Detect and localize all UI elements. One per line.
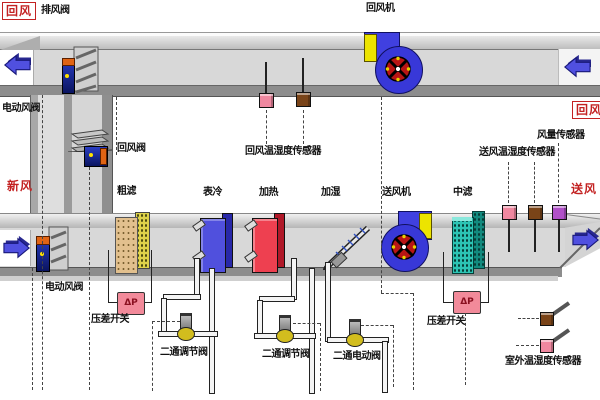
fan-impeller-icon <box>384 55 412 83</box>
airflow-sensor-label: 风量传感器 <box>537 131 585 141</box>
supply-air-arrow-icon <box>572 228 600 252</box>
electric-damper-bottom-label: 电动风阀 <box>45 283 83 293</box>
dp-switch-left: ΔP <box>117 292 145 315</box>
return-temp-humidity-sensor-1 <box>259 93 274 108</box>
two-way-electric-valve-body <box>346 333 364 347</box>
heating-coil-label: 加热 <box>259 188 278 198</box>
supply-fan <box>378 209 433 274</box>
coarse-filter-front <box>115 217 138 274</box>
fresh-air-arrow-icon <box>3 236 31 260</box>
hvac-system-diagram: ΔP ΔP 回风 排风阀 回风机 电动风阀 回风阀 新风 粗滤 表冷 加热 加湿… <box>0 0 600 400</box>
louver-icon <box>48 226 70 272</box>
medium-filter-label: 中滤 <box>453 188 472 198</box>
two-way-regulating-valve-2-body <box>276 329 294 343</box>
exhaust-valve-label: 排风阀 <box>41 6 70 16</box>
return-air-label-top-left: 回风 <box>2 2 36 20</box>
supply-air-label: 送风 <box>571 183 597 195</box>
fan-impeller-icon <box>390 233 418 261</box>
two-way-electric-valve-label: 二通电动阀 <box>333 352 381 362</box>
heating-coil <box>250 213 284 273</box>
return-air-arrow-icon <box>563 55 591 79</box>
supply-temp-humidity-sensor-2 <box>528 205 543 220</box>
return-damper-label: 回风阀 <box>117 144 146 154</box>
dp-switch-left-label: 压差开关 <box>91 315 129 325</box>
two-way-regulating-valve-1-label: 二通调节阀 <box>160 348 208 358</box>
outdoor-sensor-2 <box>540 339 554 353</box>
humidifier-label: 加湿 <box>321 188 340 198</box>
exhaust-damper <box>60 46 102 96</box>
return-damper <box>62 126 112 170</box>
electric-damper-top-label: 电动风阀 <box>2 104 40 114</box>
two-way-regulating-valve-1-body <box>177 327 195 341</box>
return-temp-humidity-sensor-2 <box>296 92 311 107</box>
outdoor-sensor-1 <box>540 312 554 326</box>
supply-temp-humidity-sensor-label: 送风温湿度传感器 <box>479 148 555 158</box>
dp-switch-right: ΔP <box>453 291 481 314</box>
return-fan-label: 回风机 <box>366 4 395 14</box>
return-fan <box>358 30 424 98</box>
louver-icon <box>72 46 102 94</box>
air-handling-unit-duct <box>0 213 600 283</box>
medium-filter <box>450 211 484 273</box>
airflow-sensor-device <box>552 205 567 220</box>
fresh-air-damper <box>34 224 70 274</box>
cooling-coil <box>198 213 232 273</box>
two-way-regulating-valve-2-label: 二通调节阀 <box>262 350 310 360</box>
supply-fan-label: 送风机 <box>382 188 411 198</box>
coarse-filter-label: 粗滤 <box>117 187 136 197</box>
cooling-coil-label: 表冷 <box>203 188 222 198</box>
exhaust-air-arrow-icon <box>3 53 31 77</box>
supply-temp-humidity-sensor-1 <box>502 205 517 220</box>
return-temp-humidity-sensor-label: 回风温湿度传感器 <box>245 147 321 157</box>
return-air-label-right: 回风 <box>572 101 600 119</box>
fresh-air-label: 新风 <box>7 180 33 192</box>
outdoor-temp-humidity-sensor-label: 室外温湿度传感器 <box>505 357 581 367</box>
dp-switch-right-label: 压差开关 <box>427 317 465 327</box>
